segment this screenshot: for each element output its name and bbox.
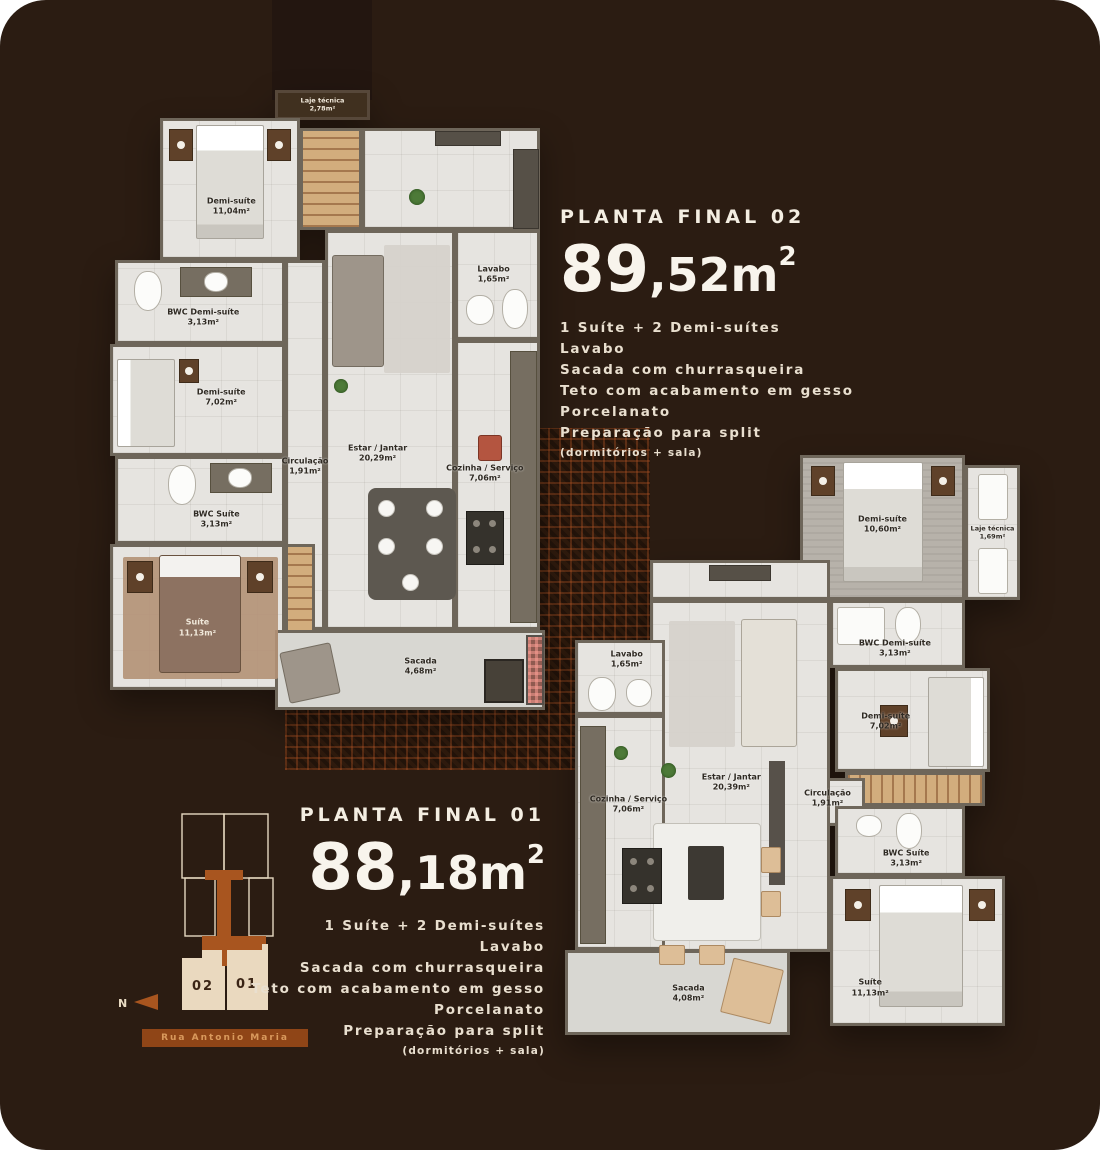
nightstand: [845, 889, 871, 921]
dining-table: [368, 488, 456, 600]
room-label: BWC Suíte3,13m²: [193, 509, 240, 530]
sofa: [332, 255, 384, 367]
room-label: BWC Demi-suíte3,13m²: [167, 307, 239, 328]
cabinet: [435, 131, 501, 146]
toilet: [588, 677, 616, 711]
room-label: Circulação1,91m²: [804, 788, 851, 809]
area-value: 88: [308, 831, 397, 905]
dining-table: [653, 823, 761, 941]
appliance: [978, 474, 1008, 520]
room-label: Demi-suíte7,02m²: [197, 387, 246, 408]
room-label: Lavabo1,65m²: [611, 649, 643, 670]
rug: [669, 621, 735, 747]
plate: [378, 500, 395, 517]
toilet: [168, 465, 196, 505]
room-label: Circulação1,91m²: [282, 456, 329, 477]
plant: [334, 379, 348, 393]
room-demi-suite-mid: Demi-suíte7,02m²: [110, 344, 285, 456]
feature-note: (dormitórios + sala): [560, 445, 940, 461]
nightstand: [969, 889, 995, 921]
lamp-icon: [854, 901, 862, 909]
armchair: [478, 435, 502, 461]
lamp-icon: [978, 901, 986, 909]
room-bwc-suite: BWC Suíte3,13m²: [115, 456, 285, 544]
room-label: Demi-suíte7,02m²: [861, 712, 910, 733]
room-label: Suíte11,13m²: [179, 618, 216, 639]
feature-item: Preparação para split: [560, 423, 940, 444]
chair: [761, 847, 781, 873]
plan02-title: PLANTA FINAL 02: [560, 206, 940, 228]
nightstand: [247, 561, 273, 593]
closet: [513, 149, 539, 229]
feature-item: Sacada com churrasqueira: [205, 958, 545, 979]
nightstand: [179, 359, 199, 383]
nightstand: [931, 466, 955, 496]
sink: [204, 272, 228, 292]
room-balcony: Sacada4,68m²: [275, 630, 545, 710]
plan02-features: 1 Suíte + 2 Demi-suítes Lavabo Sacada co…: [560, 318, 940, 461]
floorplan-01: Demi-suíte10,60m² Laje técnica1,69m² BWC…: [565, 450, 1025, 1075]
rug: [384, 245, 450, 373]
sink: [856, 815, 882, 837]
plant: [409, 189, 425, 205]
room-label: Laje técnica1,69m²: [971, 524, 1015, 541]
lounge-chair: [720, 958, 784, 1025]
north-arrow-icon: [134, 994, 158, 1010]
nightstand: [811, 466, 835, 496]
feature-item: Lavabo: [560, 339, 940, 360]
plate: [426, 500, 443, 517]
plan01-info: PLANTA FINAL 01 88,18m2 1 Suíte + 2 Demi…: [205, 804, 545, 1059]
wardrobe-top: [300, 128, 362, 230]
room-bwc-demi: BWC Demi-suíte3,13m²: [115, 260, 285, 344]
street-label: Rua Antonio Maria: [142, 1029, 308, 1047]
room-label: Demi-suíte10,60m²: [858, 514, 907, 535]
technical-shaft-band: [272, 0, 372, 100]
feature-item: 1 Suíte + 2 Demi-suítes: [205, 916, 545, 937]
room-kitchen: Cozinha / Serviço7,06m²: [455, 340, 540, 630]
feature-item: 1 Suíte + 2 Demi-suítes: [560, 318, 940, 339]
room-laje-tecnica: Laje técnica1,69m²: [965, 465, 1020, 600]
toilet: [134, 271, 162, 311]
sink: [466, 295, 494, 325]
chair: [699, 945, 725, 965]
room-demi-suite-mid: Demi-suíte7,02m²: [835, 668, 990, 772]
table-runner: [688, 846, 724, 900]
room-label: Laje técnica2,78m²: [301, 97, 345, 114]
room-entry-hall: [362, 128, 540, 230]
chair: [659, 945, 685, 965]
lamp-icon: [256, 573, 264, 581]
sink: [626, 679, 652, 707]
feature-item: Lavabo: [205, 937, 545, 958]
room-suite: Suíte11,13m²: [830, 876, 1005, 1026]
lamp-icon: [939, 477, 947, 485]
room-bwc-suite: BWC Suíte3,13m²: [835, 806, 965, 876]
lamp-icon: [177, 141, 185, 149]
room-label: Cozinha / Serviço7,06m²: [446, 463, 523, 484]
room-label: Estar / Jantar20,29m²: [348, 443, 407, 464]
lounge-chair: [279, 642, 341, 704]
plant: [614, 746, 628, 760]
stove: [466, 511, 504, 565]
bed: [159, 555, 241, 673]
floorplan-02: Laje técnica2,78m² Demi-suíte11,04m²: [75, 90, 545, 710]
room-bwc-demi: BWC Demi-suíte3,13m²: [830, 600, 965, 668]
room-living: Estar / Jantar20,29m²: [325, 230, 455, 630]
squared-symbol: 2: [527, 840, 545, 870]
room-suite: Suíte11,13m²: [110, 544, 285, 690]
sink: [228, 468, 252, 488]
north-label: N: [118, 997, 128, 1010]
kitchen-counter: [510, 351, 537, 623]
lamp-icon: [819, 477, 827, 485]
sofa: [741, 619, 797, 747]
plate: [402, 574, 419, 591]
lamp-icon: [136, 573, 144, 581]
plan01-title: PLANTA FINAL 01: [205, 804, 545, 826]
room-demi-suite-top: Demi-suíte11,04m²: [160, 118, 300, 260]
toilet: [896, 813, 922, 849]
plant: [661, 763, 676, 778]
bed: [196, 125, 264, 239]
area-value: 89: [560, 233, 649, 307]
room-label: BWC Suíte3,13m²: [883, 849, 930, 870]
wardrobe-suite: [845, 772, 985, 806]
room-label: Cozinha / Serviço7,06m²: [590, 795, 667, 816]
bed: [117, 359, 175, 447]
room-laje-tecnica: Laje técnica2,78m²: [275, 90, 370, 120]
cabinet: [709, 565, 771, 581]
squared-symbol: 2: [778, 242, 796, 272]
feature-item: Teto com acabamento em gesso: [205, 979, 545, 1000]
barbecue-grill: [484, 659, 524, 703]
feature-item: Porcelanato: [560, 402, 940, 423]
room-living: Estar / Jantar20,39m²: [650, 600, 830, 952]
bed: [928, 677, 984, 767]
stove: [622, 848, 662, 904]
toilet: [502, 289, 528, 329]
appliance: [978, 548, 1008, 594]
room-label: BWC Demi-suíte3,13m²: [859, 638, 931, 659]
room-label: Sacada4,08m²: [672, 984, 704, 1005]
bed: [879, 885, 963, 1007]
room-label: Demi-suíte11,04m²: [207, 196, 256, 217]
feature-item: Sacada com churrasqueira: [560, 360, 940, 381]
barbecue-counter: [526, 635, 544, 705]
room-kitchen: Cozinha / Serviço7,06m²: [575, 715, 665, 950]
room-lavabo: Lavabo1,65m²: [575, 640, 665, 715]
nightstand: [127, 561, 153, 593]
room-label: Sacada4,68m²: [404, 657, 436, 678]
plan02-info: PLANTA FINAL 02 89,52m2 1 Suíte + 2 Demi…: [560, 206, 940, 461]
room-label: Suíte11,13m²: [852, 978, 889, 999]
kitchen-counter: [580, 726, 606, 944]
plate: [426, 538, 443, 555]
feature-item: Teto com acabamento em gesso: [560, 381, 940, 402]
room-label: Estar / Jantar20,39m²: [702, 773, 761, 794]
room-lavabo: Lavabo1,65m²: [455, 230, 540, 340]
lamp-icon: [185, 367, 193, 375]
plan02-area: 89,52m2: [560, 238, 940, 302]
feature-item: Porcelanato: [205, 1000, 545, 1021]
plate: [378, 538, 395, 555]
brochure-canvas: Laje técnica2,78m² Demi-suíte11,04m²: [0, 0, 1100, 1150]
lamp-icon: [275, 141, 283, 149]
nightstand: [267, 129, 291, 161]
nightstand: [169, 129, 193, 161]
room-entry-hall: [650, 560, 830, 600]
chair: [761, 891, 781, 917]
plan01-area: 88,18m2: [205, 836, 545, 900]
room-label: Lavabo1,65m²: [477, 264, 509, 285]
